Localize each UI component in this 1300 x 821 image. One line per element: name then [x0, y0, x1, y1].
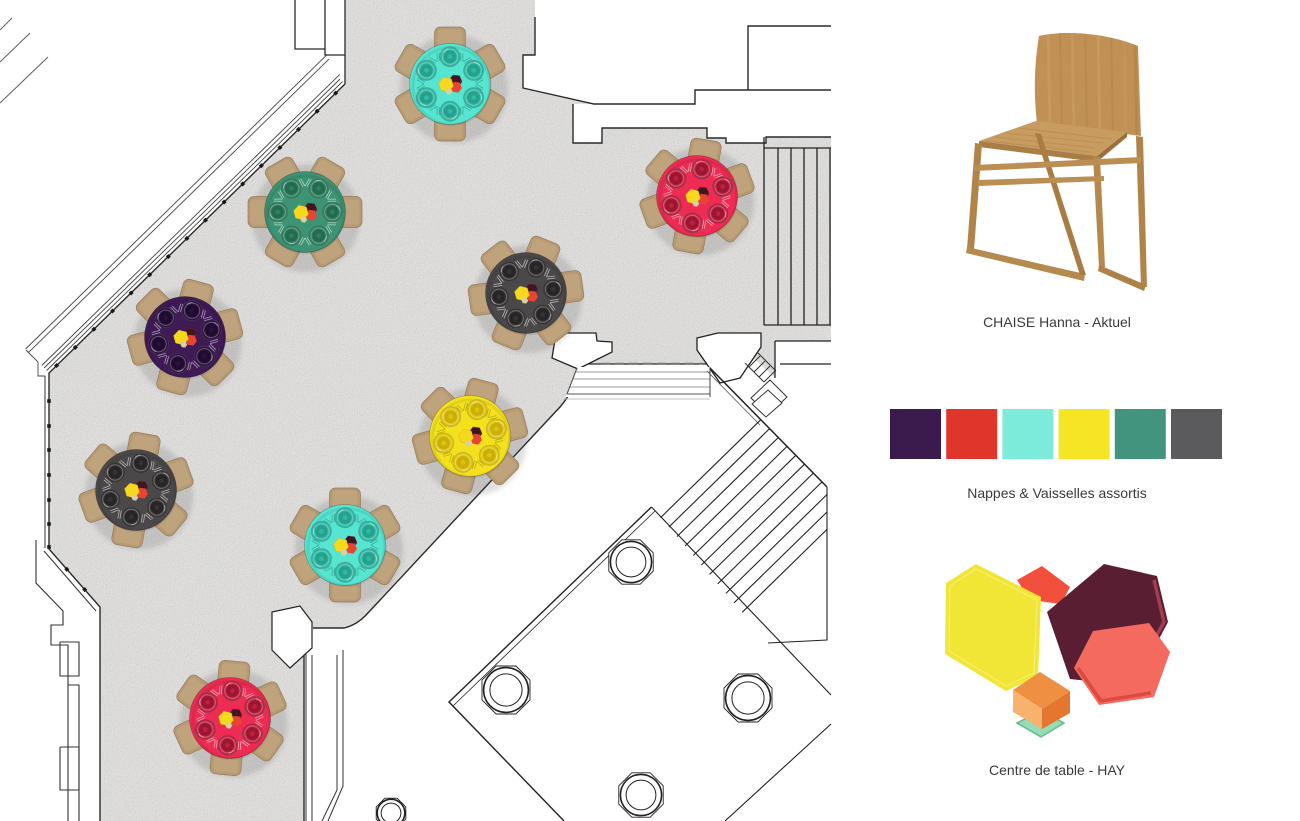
svg-text:CHAISE Hanna - Aktuel: CHAISE Hanna - Aktuel [983, 314, 1131, 330]
svg-text:Nappes & Vaisselles assortis: Nappes & Vaisselles assortis [967, 485, 1146, 501]
svg-text:Centre de table - HAY: Centre de table - HAY [989, 762, 1126, 778]
